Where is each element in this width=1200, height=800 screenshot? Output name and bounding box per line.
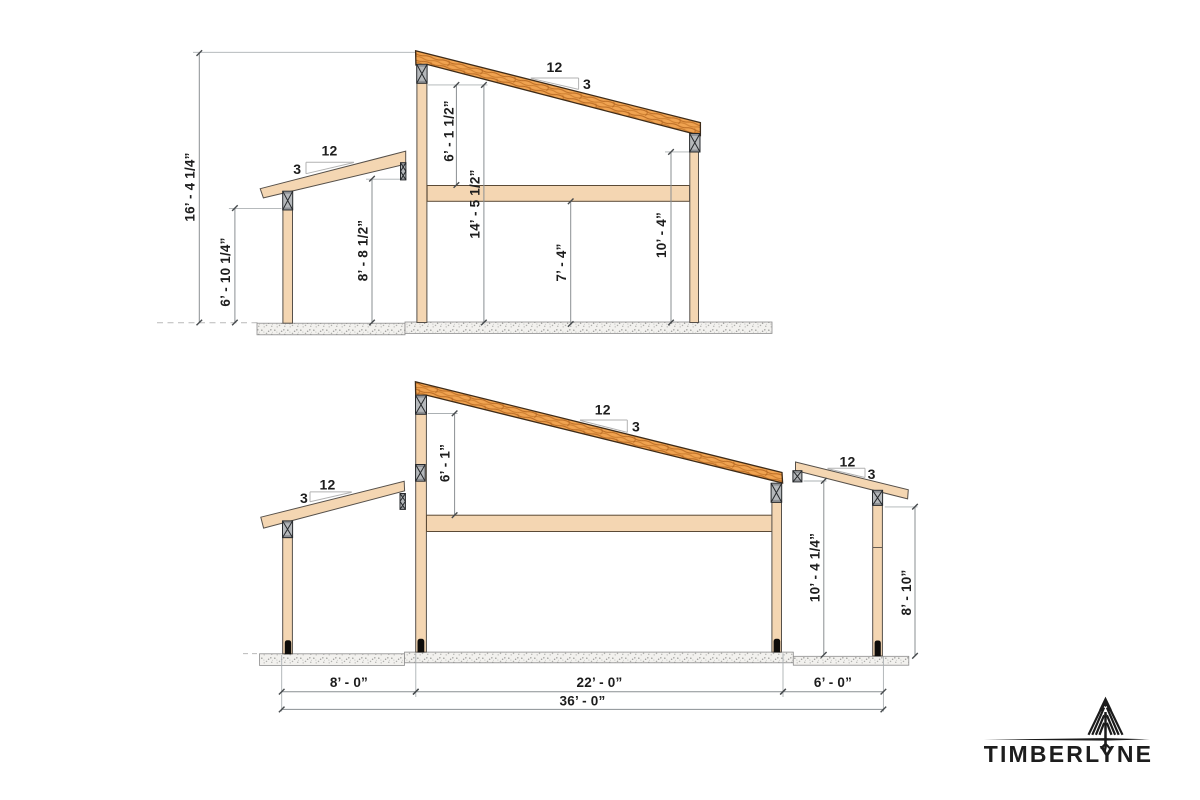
svg-text:10’ - 4 1/4”: 10’ - 4 1/4” <box>807 533 822 602</box>
svg-text:3: 3 <box>583 76 591 92</box>
svg-text:12: 12 <box>320 477 336 493</box>
svg-text:8’ - 10”: 8’ - 10” <box>899 570 914 616</box>
svg-text:36’ - 0”: 36’ - 0” <box>560 694 606 709</box>
svg-text:3: 3 <box>293 161 301 177</box>
svg-text:3: 3 <box>300 490 308 506</box>
svg-text:22’ - 0”: 22’ - 0” <box>577 675 623 690</box>
svg-text:6’ - 0”: 6’ - 0” <box>814 675 852 690</box>
svg-text:6’ - 1 1/2”: 6’ - 1 1/2” <box>441 100 456 162</box>
svg-text:6’ - 10 1/4”: 6’ - 10 1/4” <box>218 237 233 306</box>
svg-text:12: 12 <box>322 143 338 159</box>
svg-text:8’ - 0”: 8’ - 0” <box>330 675 368 690</box>
svg-text:12: 12 <box>840 454 856 470</box>
svg-text:16’ - 4 1/4”: 16’ - 4 1/4” <box>183 152 198 221</box>
svg-text:3: 3 <box>632 419 640 435</box>
svg-text:7’ - 4”: 7’ - 4” <box>554 243 569 281</box>
svg-text:TIMBERLYNE: TIMBERLYNE <box>984 741 1151 767</box>
svg-text:12: 12 <box>547 59 563 75</box>
svg-text:12: 12 <box>595 402 611 418</box>
svg-text:6’ - 1”: 6’ - 1” <box>437 444 452 482</box>
svg-text:14’ - 5 1/2”: 14’ - 5 1/2” <box>467 169 482 238</box>
svg-text:3: 3 <box>868 466 876 482</box>
svg-text:8’ - 8 1/2”: 8’ - 8 1/2” <box>356 220 371 282</box>
svg-text:10’ - 4”: 10’ - 4” <box>654 212 669 258</box>
